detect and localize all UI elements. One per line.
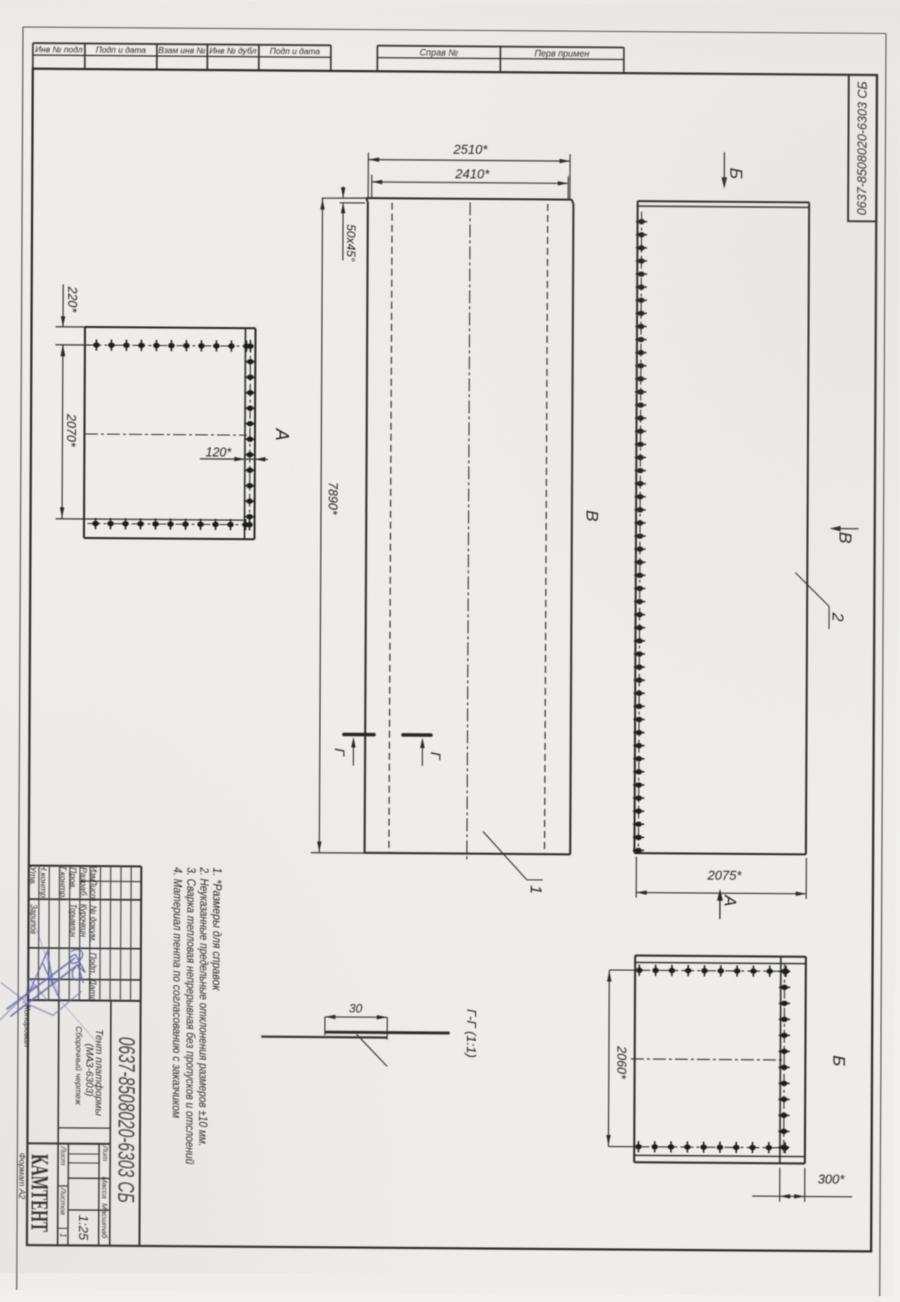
svg-text:2070*: 2070* [64,413,78,448]
svg-text:Инв № дубл: Инв № дубл [209,45,256,55]
svg-text:В: В [582,510,601,521]
svg-text:Масштаб: Масштаб [100,1203,109,1239]
svg-text:Масса: Масса [100,1177,109,1199]
svg-text:Копировал: Копировал [22,1005,32,1048]
svg-text:Лист: Лист [89,878,99,901]
svg-text:50х45°: 50х45° [344,224,358,262]
svg-text:0637-8508020-6303 СБ: 0637-8508020-6303 СБ [113,1037,140,1203]
svg-text:Торымлин: Торымлин [68,904,78,937]
svg-text:Разраб.: Разраб. [78,867,88,898]
svg-text:№ докум.: № докум. [88,905,98,943]
svg-text:2: 2 [829,612,846,622]
svg-text:2510*: 2510* [452,142,488,157]
svg-text:Перв примен: Перв примен [534,48,589,58]
svg-text:Б: Б [726,168,746,180]
svg-text:Курочкин: Курочкин [78,904,88,937]
svg-text:Сборочный чертеж: Сборочный чертеж [73,1026,83,1106]
svg-text:Инв № подл: Инв № подл [35,44,83,54]
svg-text:300*: 300* [818,1171,846,1186]
svg-text:1:25: 1:25 [76,1215,91,1241]
svg-text:7890*: 7890* [326,482,340,516]
svg-text:120*: 120* [205,445,232,459]
svg-text:Дата: Дата [88,978,98,1002]
svg-text:Утв.: Утв. [28,865,38,885]
svg-text:Лист: Лист [59,1145,68,1165]
svg-text:Справ №: Справ № [420,47,459,57]
svg-text:220*: 220* [65,285,79,313]
svg-text:В: В [835,532,855,544]
svg-text:2410*: 2410* [454,166,490,181]
svg-text:КАМТЕНТ: КАМТЕНТ [26,1154,52,1232]
svg-text:Н.контр.: Н.контр. [38,864,48,900]
svg-text:Б: Б [829,1055,848,1066]
svg-text:4. Материал тента по согласова: 4. Материал тента по согласованию с зака… [170,867,185,1119]
svg-text:Пров.: Пров. [68,867,78,889]
svg-text:1: 1 [527,885,544,894]
svg-text:2075*: 2075* [706,867,742,882]
svg-text:А: А [721,894,740,906]
svg-text:Подп.: Подп. [88,953,98,976]
svg-text:0637-8508020-6303 СБ: 0637-8508020-6303 СБ [855,81,870,215]
svg-text:Подп и дата: Подп и дата [96,44,147,54]
svg-text:2060*: 2060* [614,1045,628,1080]
svg-text:Формат А2: Формат А2 [17,1153,27,1200]
svg-text:1: 1 [58,1233,67,1238]
svg-text:Т.контр.: Т.контр. [58,865,68,899]
svg-text:30: 30 [349,1002,363,1016]
svg-text:Г-Г (1:1): Г-Г (1:1) [464,1009,479,1058]
svg-text:Лит: Лит [101,1145,110,1162]
svg-text:Листов: Листов [59,1187,68,1215]
svg-text:А: А [272,428,292,441]
svg-text:Подп и дата: Подп и дата [270,46,321,56]
svg-text:Взам инв №: Взам инв № [158,45,205,55]
